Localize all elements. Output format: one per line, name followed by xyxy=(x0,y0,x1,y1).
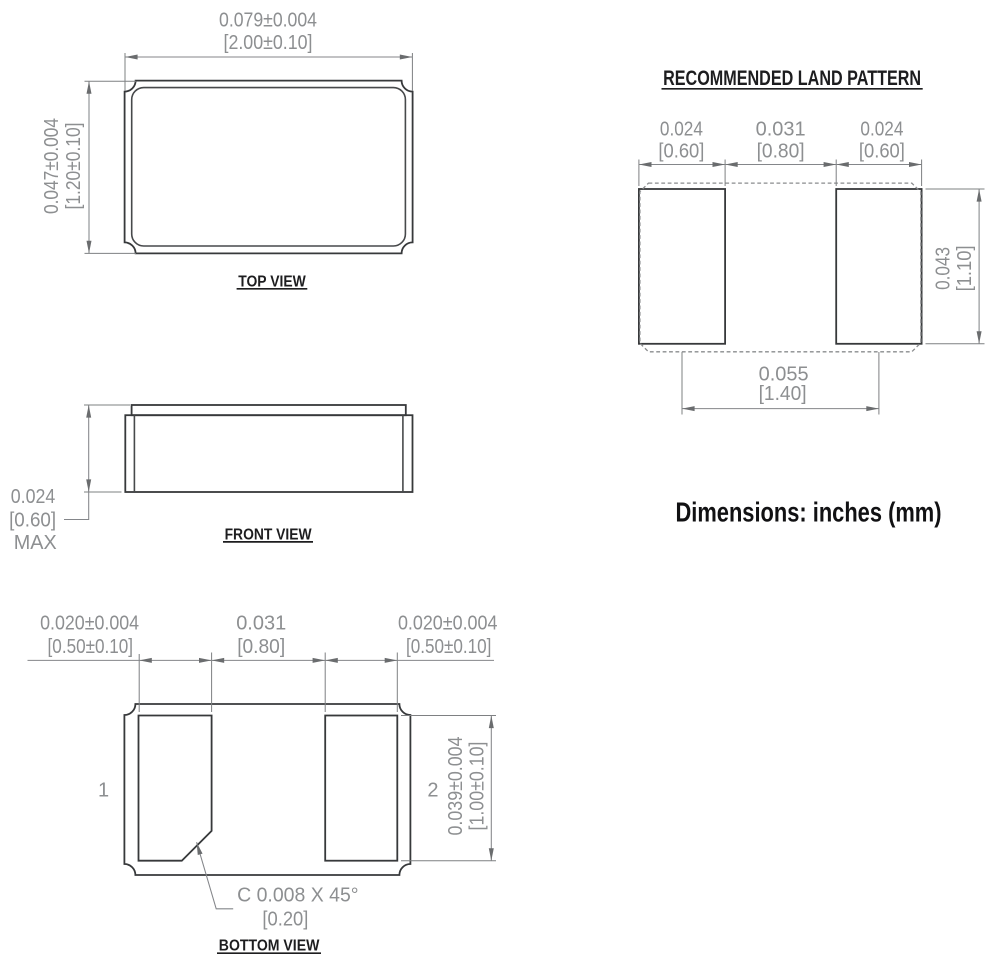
svg-text:[0.20]: [0.20] xyxy=(262,909,308,931)
svg-text:0.024: 0.024 xyxy=(860,119,903,141)
svg-text:0.024: 0.024 xyxy=(660,119,703,141)
svg-text:[1.10]: [1.10] xyxy=(954,245,976,291)
svg-text:0.031: 0.031 xyxy=(756,119,806,141)
svg-text:[1.20±0.10]: [1.20±0.10] xyxy=(63,123,85,210)
svg-text:BOTTOM VIEW: BOTTOM VIEW xyxy=(219,938,320,955)
svg-text:[1.40]: [1.40] xyxy=(759,383,807,405)
svg-text:[0.50±0.10]: [0.50±0.10] xyxy=(406,636,492,658)
svg-text:0.047±0.004: 0.047±0.004 xyxy=(41,118,63,214)
svg-text:0.055: 0.055 xyxy=(759,363,809,385)
svg-text:RECOMMENDED LAND PATTERN: RECOMMENDED LAND PATTERN xyxy=(663,67,921,90)
svg-text:1: 1 xyxy=(98,780,109,802)
svg-text:0.043: 0.043 xyxy=(932,247,954,290)
svg-text:0.031: 0.031 xyxy=(236,613,286,635)
svg-text:0.020±0.004: 0.020±0.004 xyxy=(398,613,498,635)
svg-text:[0.60]: [0.60] xyxy=(9,510,56,532)
svg-text:Dimensions: inches (mm): Dimensions: inches (mm) xyxy=(676,497,942,528)
svg-text:[0.80]: [0.80] xyxy=(757,141,805,163)
svg-text:[0.60]: [0.60] xyxy=(658,141,704,163)
svg-text:[0.60]: [0.60] xyxy=(859,141,905,163)
svg-text:MAX: MAX xyxy=(14,532,57,554)
svg-text:[2.00±0.10]: [2.00±0.10] xyxy=(224,32,313,54)
svg-text:0.020±0.004: 0.020±0.004 xyxy=(40,613,139,635)
svg-text:FRONT VIEW: FRONT VIEW xyxy=(225,527,313,544)
svg-text:[1.00±0.10]: [1.00±0.10] xyxy=(466,742,488,831)
svg-text:C 0.008 X 45°: C 0.008 X 45° xyxy=(237,884,359,906)
svg-text:2: 2 xyxy=(427,780,438,802)
svg-text:0.039±0.004: 0.039±0.004 xyxy=(445,737,467,836)
svg-text:[0.80]: [0.80] xyxy=(237,636,285,658)
svg-text:0.079±0.004: 0.079±0.004 xyxy=(219,10,317,32)
svg-text:0.024: 0.024 xyxy=(11,486,56,508)
svg-text:[0.50±0.10]: [0.50±0.10] xyxy=(48,636,134,658)
